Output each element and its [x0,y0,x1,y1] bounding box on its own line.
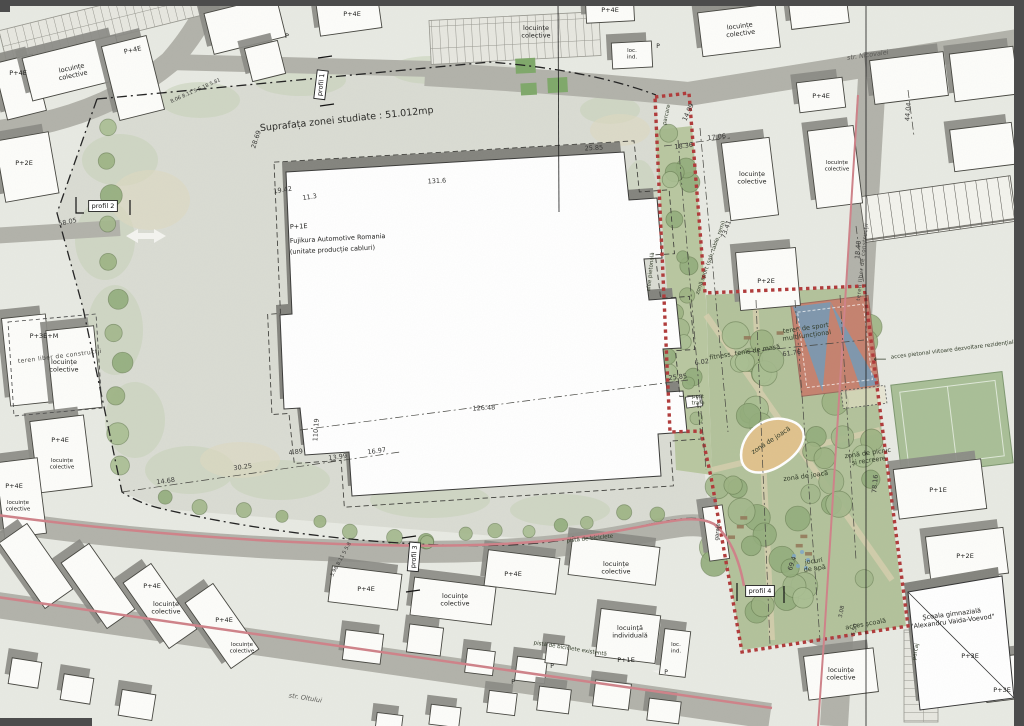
map-label: 110.19 [311,418,321,441]
map-label: P [656,43,660,50]
tree [342,524,357,539]
map-label: posttrafo [691,394,705,407]
building [537,686,572,714]
tree [580,516,593,529]
map-label: loc.ind. [671,642,682,655]
map-label: P+2E [15,159,33,167]
bench [737,525,744,529]
map-label: P+4E [343,10,361,18]
tree [751,594,774,617]
tree [100,216,116,232]
tree [617,505,632,520]
tree [666,211,683,228]
tree [105,324,122,341]
map-label: locuințecolective [151,600,180,616]
building [429,704,461,726]
tree [523,525,535,537]
map-label: locuințecolective [6,500,31,513]
tree [741,536,761,556]
tree [100,119,117,136]
tree [111,456,130,475]
map-label: P+4E [51,436,69,444]
map-label: P+4E [357,585,375,593]
map-label: 78.16 [870,474,880,493]
tree [855,570,873,588]
map-label: locuințecolective [521,24,550,40]
building [465,648,496,675]
map-label: P+4E [143,582,161,590]
bench [800,535,807,539]
map-label: 131.6 [427,177,446,186]
map-label: P [285,32,289,40]
map-label: locuințecolective [826,666,855,682]
tree [112,352,133,373]
map-label: locuințecolective [49,358,78,374]
tree [192,500,207,515]
map-label: 25.85 [584,144,603,153]
tree [677,251,689,263]
tree [236,503,251,518]
building [60,674,94,704]
tree [662,171,678,187]
tree [722,322,749,349]
map-label: P [550,663,554,670]
map-label: P+4E [215,616,233,624]
site-plan-canvas: Suprafața zonei studiate : 51.012mpP+1EF… [0,0,1024,726]
map-label: P+4E [601,6,619,14]
tree [814,448,835,469]
map-label: locuințecolective [601,560,630,576]
tree [793,587,814,608]
profile-marker-4: profil 4 [749,587,772,595]
bench [744,336,751,340]
tree [108,289,128,309]
tree [314,515,326,527]
bench [805,552,812,556]
building [0,132,59,202]
tree [728,498,755,525]
building [118,690,156,721]
building [8,658,42,688]
map-label: P+1E [290,222,308,231]
map-label: locuințecolective [737,170,766,186]
tree [276,510,288,522]
profile-marker-2: profil 2 [92,202,115,210]
tree [158,490,172,504]
map-label: P+3E [993,686,1011,694]
map-label: P+4E [504,570,522,578]
arrow-west-icon: ⟵ [874,355,887,365]
map-label: P+3E+M [30,332,59,340]
map-label: P [664,669,668,676]
building [647,698,681,724]
map-label: 126.48 [472,403,495,412]
tree [650,507,665,522]
tree [98,153,114,169]
building [406,624,443,656]
tree [679,288,694,303]
tree [488,523,502,537]
map-label: P [511,679,515,686]
factory-building [276,142,687,496]
map-label: locuințecolective [825,160,850,173]
map-label: P+1E [929,486,947,494]
building [949,46,1018,101]
building [487,690,517,715]
map-label: 44.04 [903,102,913,121]
map-label: locuințecolective [440,592,469,608]
map-label: P+2E [757,277,775,285]
bench [796,544,803,548]
tree [459,527,472,540]
site-plan-map: Suprafața zonei studiate : 51.012mpP+1EF… [0,0,1024,726]
map-label: locuințecolective [50,458,75,471]
tree [100,253,117,270]
tree [831,426,854,449]
map-label: locuințecolective [230,642,255,655]
map-label: P+1E [617,656,635,664]
map-label: locuințăindividuală [612,624,648,640]
tree [724,476,742,494]
bench [740,516,747,520]
tree [554,519,567,532]
map-label: loc.ind. [627,48,638,61]
tree [660,124,678,142]
tree [785,506,810,531]
map-label: P+4E [812,92,830,100]
tree [801,484,821,504]
map-label: P+2E [956,552,974,560]
tree [690,412,703,425]
tree [107,387,125,405]
map-label: P+4E [9,69,27,77]
tree [826,491,852,517]
map-label: P+3E [961,652,979,660]
map-label: P+4E [5,482,23,490]
bench [728,535,735,539]
building [950,122,1017,171]
